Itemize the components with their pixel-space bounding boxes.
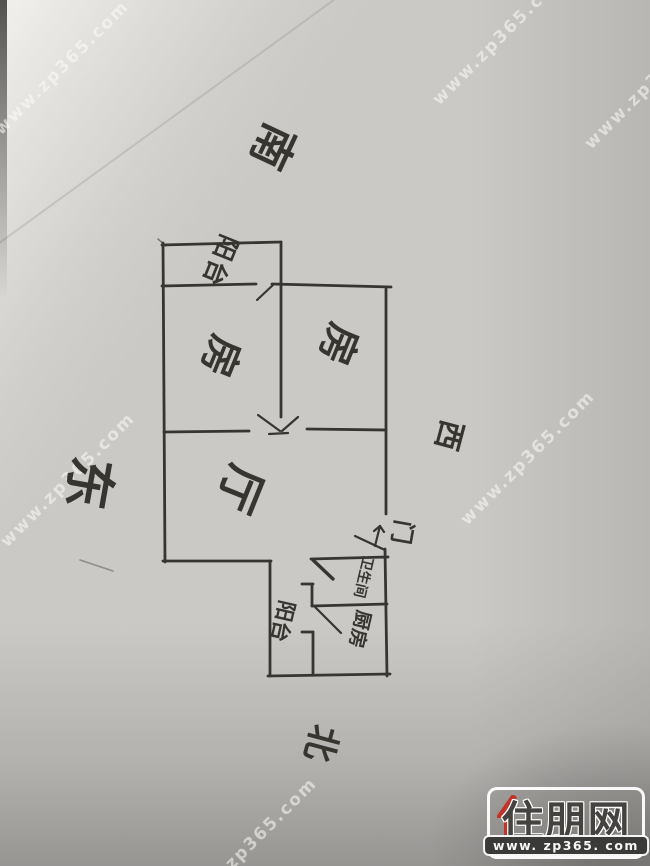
floor-plan-photo: www.zp365.com www.zp365.com www.zp365.co… [0,0,650,866]
logo-url: www. zp365. com [485,837,647,854]
label-entry-door: 门 [388,518,416,546]
site-logo: 住朋网 www. zp365. com [487,787,645,859]
label-compass-east: 东 [58,453,118,513]
